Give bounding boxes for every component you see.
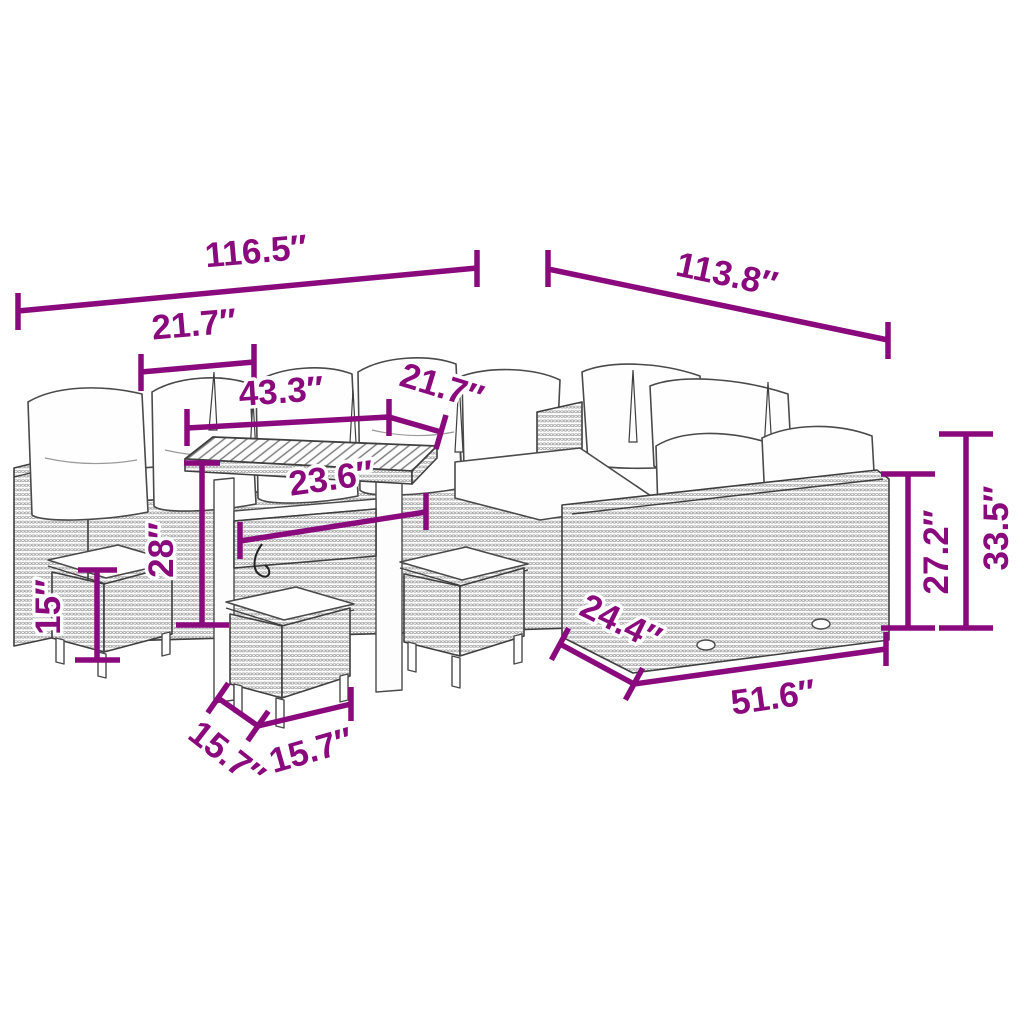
dim-label-overall-height: 33.5″ [977,485,1016,570]
diagram-canvas: 116.5″ 113.8″ 21.7″ 43.3″ 21.7″ 23.6″ 28… [0,0,1024,1024]
stool-leg [340,674,348,702]
dim-backrest-height: 27.2″ [881,474,956,628]
back-pillow-1 [28,388,148,520]
dim-overall-width: 116.5″ [18,228,477,330]
dim-label-overall-depth: 113.8″ [673,245,782,304]
stool-right [400,547,528,688]
dim-label-stool-width: 15.7″ [265,720,358,781]
dim-label-left-seat-width: 21.7″ [150,301,238,347]
wall-foot-cap [697,640,715,650]
stool-leg [162,632,170,656]
right-sofa-back-wall [562,470,889,673]
stool-leg [408,642,416,672]
stool-leg [56,638,64,664]
dim-label-overall-width: 116.5″ [203,228,309,276]
dim-label-right-sofa-length: 51.6″ [728,672,818,722]
dim-label-table-height: 28″ [142,522,181,578]
table-leg-right [376,472,402,692]
dim-overall-depth: 113.8″ [548,245,888,359]
dim-label-stool-height: 15″ [29,579,68,635]
dim-label-backrest-height: 27.2″ [917,509,956,594]
dim-label-table-length: 43.3″ [237,369,325,414]
wall-foot-cap [812,619,830,629]
stool-leg [514,634,522,664]
stool-leg [452,656,460,688]
furniture-dimension-diagram: 116.5″ 113.8″ 21.7″ 43.3″ 21.7″ 23.6″ 28… [0,0,1024,1024]
